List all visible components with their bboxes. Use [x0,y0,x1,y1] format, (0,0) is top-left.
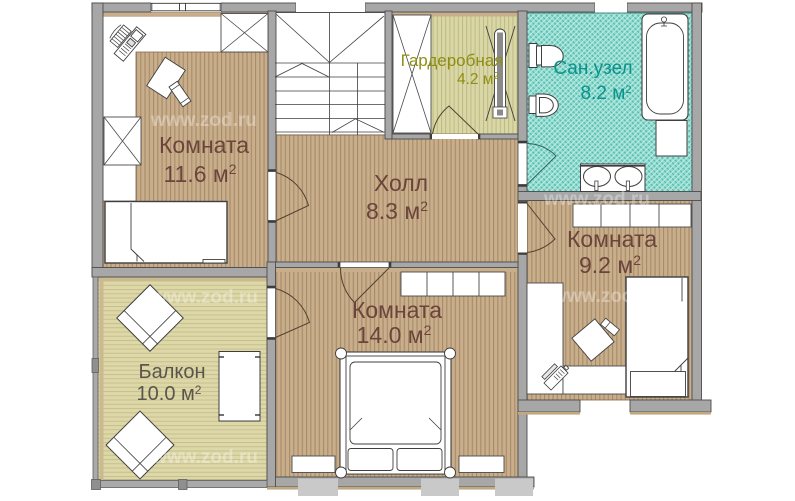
svg-text:www.zod.ru: www.zod.ru [151,287,258,308]
svg-text:www.zod.ru: www.zod.ru [150,110,257,131]
svg-text:11.6 м2: 11.6 м2 [163,161,236,187]
svg-text:Сан.узел: Сан.узел [553,58,632,79]
svg-text:Комната: Комната [352,297,442,323]
svg-text:Гардеробная: Гардеробная [401,51,504,70]
svg-text:8.3 м2: 8.3 м2 [366,198,428,224]
svg-text:10.0 м2: 10.0 м2 [137,383,202,405]
svg-text:www.zod.ru: www.zod.ru [151,447,258,468]
svg-text:Комната: Комната [159,132,249,158]
svg-text:9.2 м2: 9.2 м2 [579,252,641,278]
svg-text:Комната: Комната [567,226,657,252]
svg-text:www.zod.ru: www.zod.ru [543,189,650,210]
svg-text:4.2 м2: 4.2 м2 [457,71,500,88]
svg-text:Холл: Холл [374,170,428,196]
svg-text:8.2 м2: 8.2 м2 [581,83,632,104]
svg-text:Балкон: Балкон [138,361,205,383]
svg-text:www.zod.ru: www.zod.ru [551,286,658,307]
svg-text:14.0 м2: 14.0 м2 [357,322,432,348]
